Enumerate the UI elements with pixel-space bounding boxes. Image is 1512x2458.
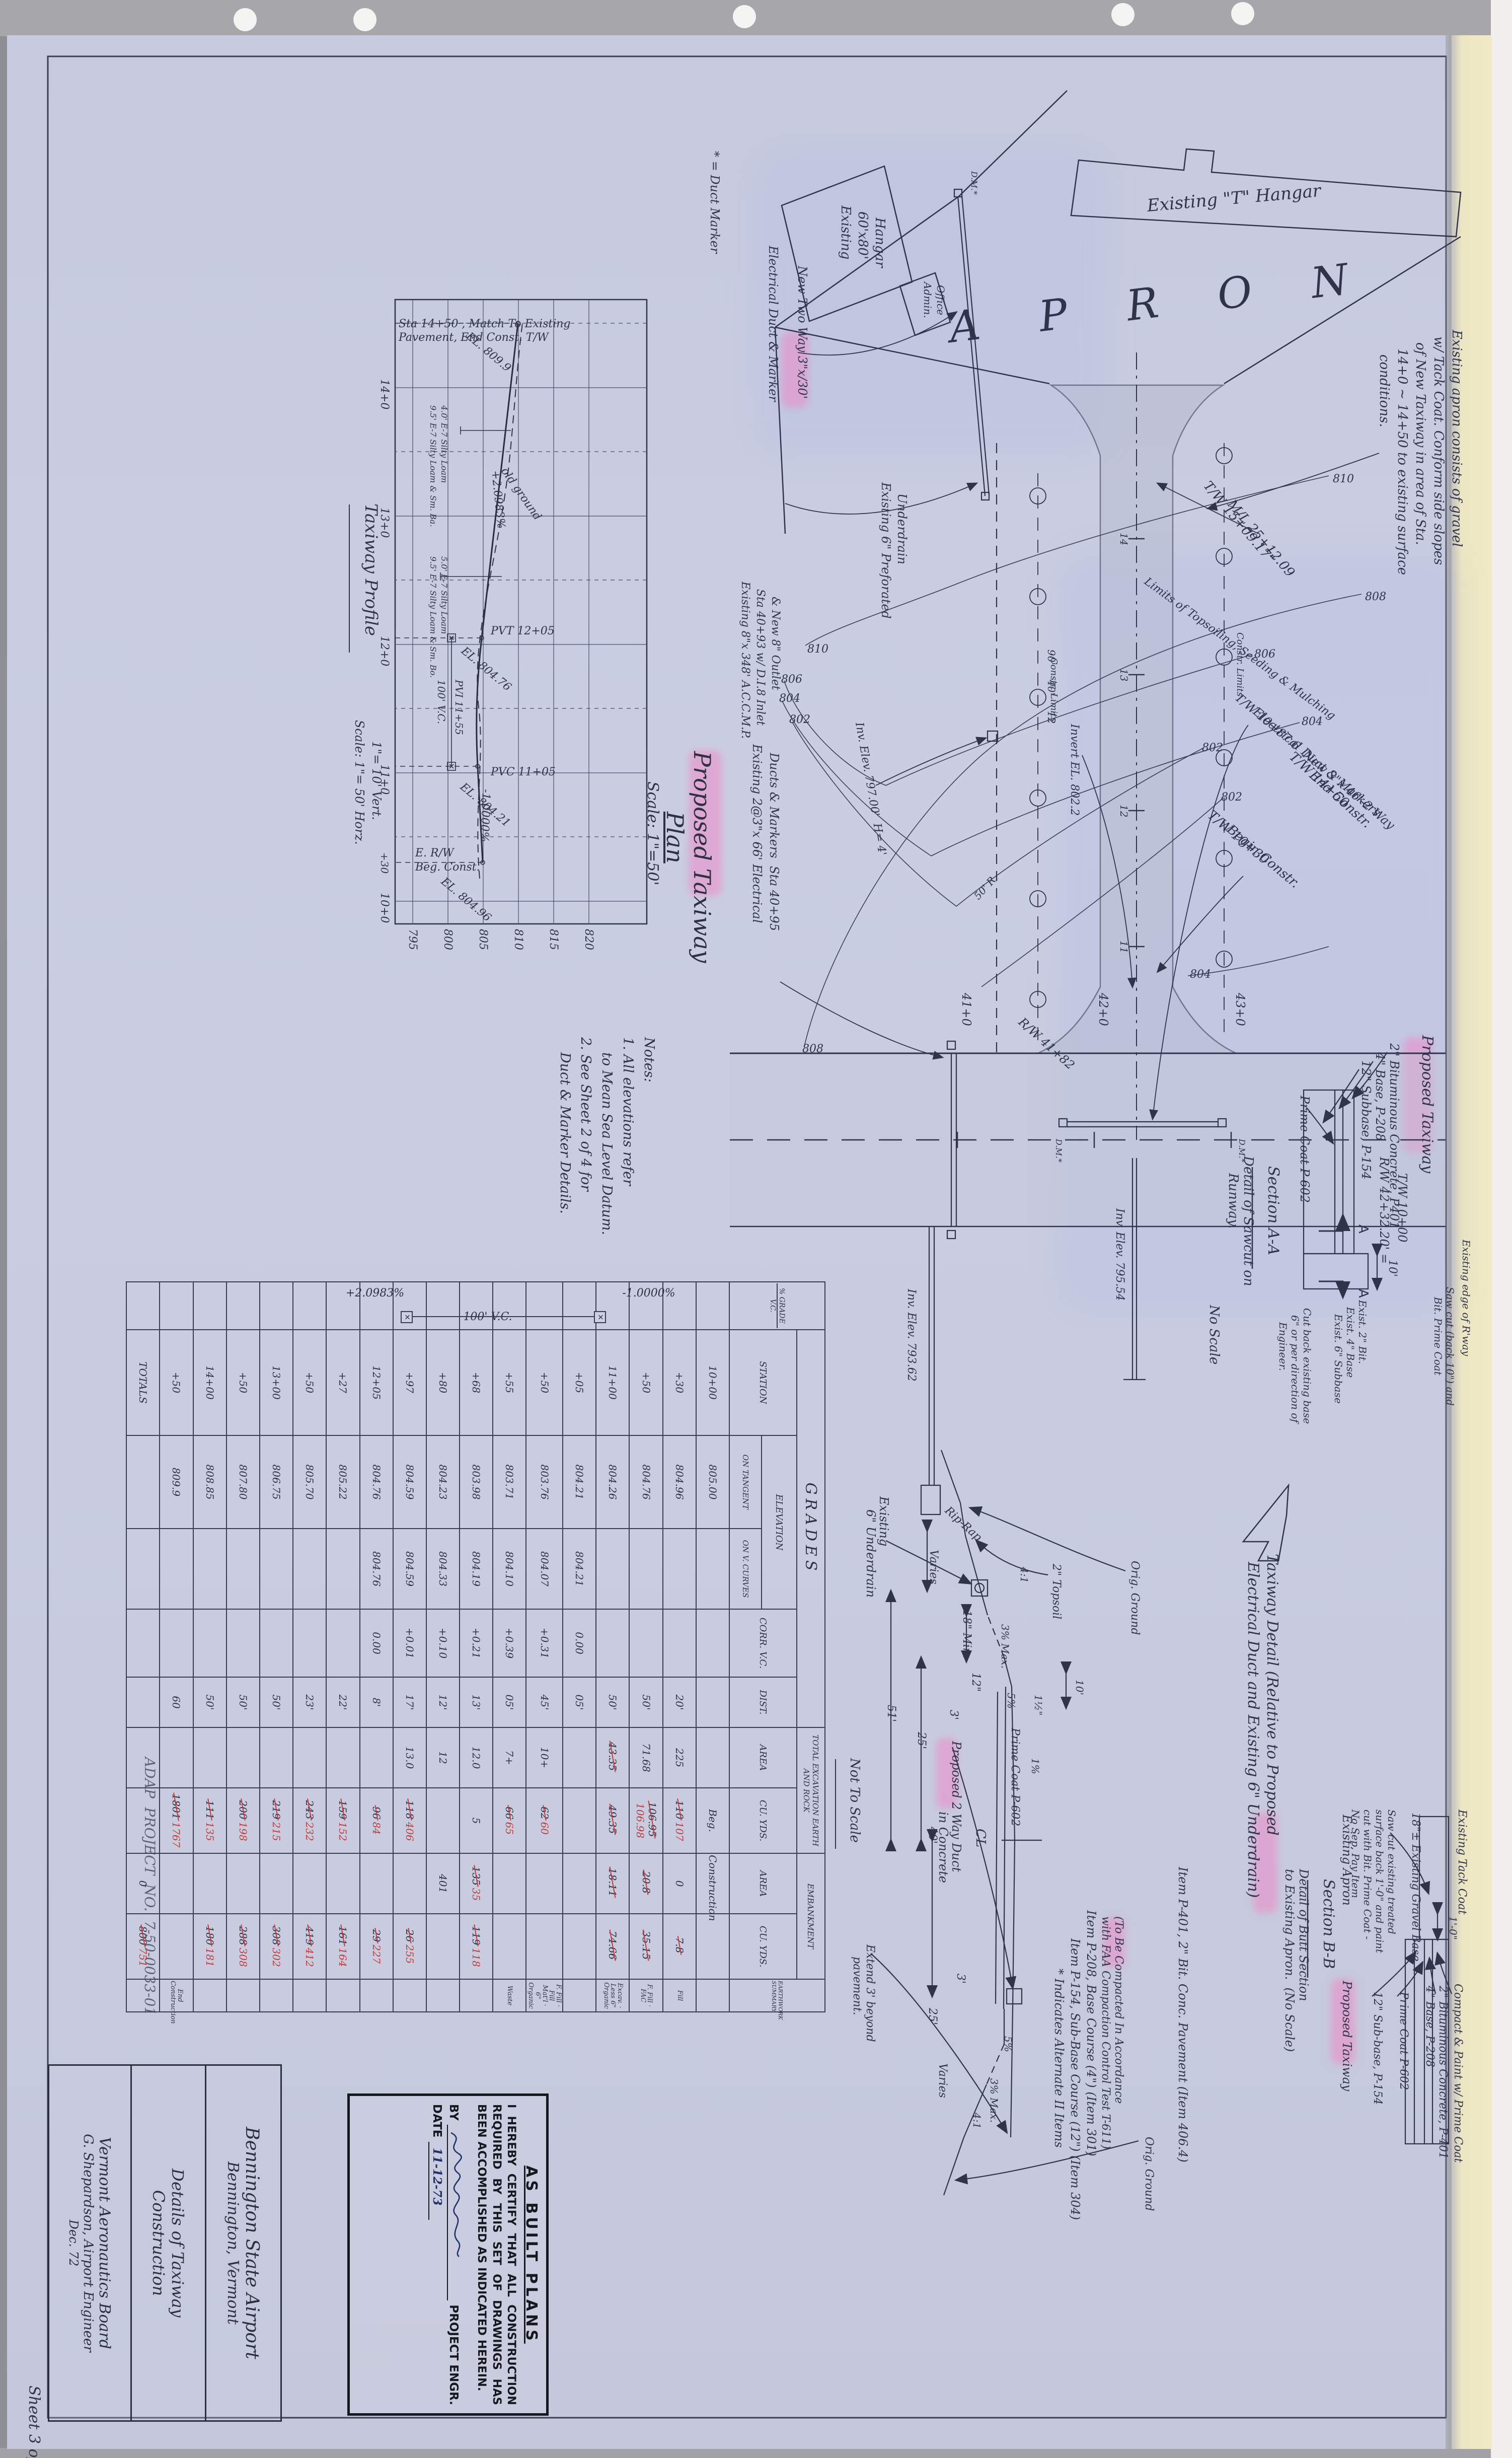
detail-orig-ground2: Orig. Ground [1143,2137,1155,2211]
grades-cell-dist: 8' [360,1677,393,1727]
detail-varies: Varies [927,1550,940,1584]
plan-dim90: 90' [1045,649,1057,665]
note-2: 2. See Sheet 2 of 4 for [575,1037,596,1299]
plan-invert8022: Invert EL. 802.2 [1068,724,1081,816]
plan-dm: D.M.* [1054,1138,1064,1163]
detail-5pct-b: 5% [1002,2036,1014,2052]
grades-cell-dist: 45' [526,1677,563,1727]
grades-cell-elev_t: 804.96 [663,1435,696,1529]
plan-underdrain6: Underdrain [895,493,909,564]
grades-row: +30804.9620'22511010707.8Fill [663,1282,696,2012]
plan-title-text: Proposed Taxiway [689,751,716,963]
grades-cell-emb_cu: 119118 [460,1914,493,1979]
grades-cell-summary [696,1979,729,2012]
grades-cell-emb_area [360,1853,393,1914]
plan-apron-note: conditions. [1377,354,1392,427]
plan-elec-duct: Electrical Duct & Marker [766,245,780,402]
sectionBB-title: Section B-B [1320,1879,1337,1969]
grades-col-cuyds2: CU. YDS. [729,1914,797,1979]
grades-cell-dist: 05' [563,1677,596,1727]
sectionBB-proposed-taxiway: Proposed Taxiway [1340,1980,1354,2091]
plan-riprap: Rip-Rap [942,1504,984,1544]
grades-cell-elev_t: 804.76 [629,1435,662,1529]
grades-cell-summary: Fill [663,1979,696,2012]
detail-underdrain: 6" Underdrain [864,1509,878,1598]
grades-cell-exc_cu: 9684 [360,1788,393,1853]
grades-cell-dist: 17' [393,1677,426,1727]
grades-row: +50809.96018011767End Construction [160,1282,193,2012]
grades-cell-exc_cu [563,1788,596,1853]
grades-cell-emb_area [493,1853,526,1914]
grades-cell-emb_cu [696,1914,729,1979]
grades-cell-dist: 50' [629,1677,662,1727]
plan-tick13: 13 [1118,669,1130,681]
plan-tick14: 14 [1118,533,1130,545]
detail-41slope: 4:1 [1018,1566,1030,1583]
contour-808: 808 [802,1043,823,1055]
airport-location: Bennington, Vermont [224,2161,242,2325]
plan-scale: Scale: 1"=50' [644,781,661,1033]
sectionBB-compact: Compact & Paint w/ Prime Coat [1452,1984,1464,2163]
stamp-signature-line [447,2125,469,2300]
sectionBB-saw: surface back 1'-0" and paint [1374,1810,1386,1954]
grades-row: 12+05804.76804.760.008'968429227 [360,1282,393,2012]
sheet-number: Sheet 3 of 4 [25,2385,43,2458]
profile-canvas: Sta 14+50 , Match To Existing Pavement, … [375,254,677,954]
grades-cell-exc_cu: Beg. [696,1788,729,1853]
grades-col-cuyds: CU. YDS. [729,1788,797,1853]
plan-hangar60: Existing [838,205,853,259]
grades-cell-emb_cu: 35.15 [629,1914,662,1979]
plan-inv797: Inv. Elev. 797.00' H= 4' [853,721,888,857]
grades-cell-elev_vc: 804.59 [393,1529,426,1609]
contour-804: 804 [1190,968,1211,981]
engineer-name: G. Shepardson, Airport Engineer [81,2134,96,2352]
sectionAA-cutback: 6" or per direction of [1289,1315,1301,1424]
grades-cell-exc_area: 12 [426,1727,460,1788]
plan-inv79362: Inv. Elev. 793.62 [905,1288,918,1382]
grades-cell-elev_t: 806.75 [260,1435,293,1529]
detail-prime: Prime Coat P-602 [1009,1727,1021,1826]
sectionAA-subtitle: Runway. [1226,1173,1241,1228]
grades-cell-emb_area [393,1853,426,1914]
profile-elev: 800 [441,929,454,950]
grades-cell-corr [629,1609,662,1677]
grades-cell-elev_vc: 804.10 [493,1529,526,1609]
detail-3: 3' [947,1710,960,1720]
grades-cell-emb_cu: 308302 [260,1914,293,1979]
grades-cell-exc_area [126,1727,160,1788]
detail-3b: 3' [954,1974,967,1984]
plan-ducts-markers: Existing 2@3"x 66' Electrical [750,744,764,923]
grades-cell-exc_cu: 18011767 [160,1788,193,1853]
grades-cell-emb_cu: 26255 [393,1914,426,1979]
grades-cell-emb_area [226,1853,260,1914]
sectionBB-existing-apron: Existing Apron [1340,1814,1354,1906]
plan-ducts-markers: Ducts & Markers Sta 40+95 [767,752,781,931]
grades-row: +50804.7650'71.68106.95106.9820.835.15F.… [629,1282,662,2012]
grade-annotation-plus: +2.0983% [320,1287,430,1300]
plan-t-hangar: Existing "T" Hangar [1146,181,1322,216]
sectionAA-cutback: Cut back existing base [1301,1308,1313,1424]
grades-row: 11+00804.2650'43.3549.3518.1174.66Excav.… [596,1282,629,2012]
profile-grade-line [477,323,518,862]
grades-cell-dist [696,1677,729,1727]
drawing-title-line2: Construction [149,2190,169,2296]
profile-pvt: PVT 12+05 [490,625,555,637]
grades-cell-exc_cu: 200198 [226,1788,260,1853]
contour-802: 802 [1221,791,1242,804]
plan-admin-office: Admin. [922,281,934,318]
grades-cell-elev_t: 805.70 [293,1435,326,1529]
note-1b: to Mean Sea Level Datum. [596,1052,617,1299]
grades-cell-elev_t: 805.00 [696,1435,729,1529]
grades-cell-emb_cu: 29227 [360,1914,393,1979]
detail-item208: Item P-208, Base Course (4") (Item 301) [1084,1910,1098,2156]
grades-cell-emb_area: 0 [663,1853,696,1914]
grades-cell-dist: 05' [493,1677,526,1727]
profile-point-leaders [395,321,520,864]
plan-title-plan: Plan [661,812,689,863]
grades-cell-gr [226,1282,260,1330]
grades-cell-dist: 50' [260,1677,293,1727]
sectionBB-sub: 12" Sub-base, P-154 [1371,1992,1384,2105]
grades-cell-summary: Waste [493,1979,526,2012]
grades-row: +27805.2222'159152161164 [326,1282,359,2012]
detail-item401: Item P-401, 2" Bit. Conc. Pavement (Item… [1176,1866,1190,2162]
grades-cell-station: 10+00 [696,1330,729,1435]
plan-underdrain6: Existing 6" Preforated [879,482,893,619]
detail-41slope-b: 4:1 [971,2112,983,2129]
plan-accmp: Existing 8"x 348' A.C.C.M.P. [739,581,751,739]
grades-cell-station: +50 [526,1330,563,1435]
grades-cell-corr [193,1609,226,1677]
detail-tobe: (To Be Compacted In Accordance [1112,1916,1125,2104]
grades-cell-station: +30 [663,1330,696,1435]
profile-boring: 9.5' E-7 Silty Loam & Sm. Ba. [428,405,438,527]
plan-admin-office: Office [935,285,947,315]
grades-cell-station: 13+00 [260,1330,293,1435]
note-1: 1. All elevations refer [617,1037,638,1299]
grades-cell-gr [160,1282,193,1330]
detail-tobe: with FAA Compaction Control Test T-611) [1099,1916,1112,2149]
grades-row: +80804.23804.33+0.1012'12401 [426,1282,460,2012]
grades-cell-emb_area [193,1853,226,1914]
profile-elev: 820 [582,929,595,950]
grades-cell-corr: +0.31 [526,1609,563,1677]
plan-sta41: 41+0 [959,992,973,1026]
grades-cell-exc_cu: 5 [460,1788,493,1853]
grades-cell-elev_vc [596,1529,629,1609]
grades-cell-exc_area [563,1727,596,1788]
grades-cell-emb_cu: 7.8 [663,1914,696,1979]
grades-cell-exc_cu: 106.95106.98 [629,1788,662,1853]
grade-annotation-minus: -1.0000% [593,1287,704,1300]
plan-tick12: 12 [1118,805,1130,817]
profile-sta: 11+0 [378,764,391,794]
grades-col-station: STATION [729,1330,797,1435]
grades-grp-embankment: EMBANKMENT [797,1853,825,1979]
sectionBB-dim: 1'-0" [1447,1916,1459,1940]
detail-underdrain: Existing [877,1496,891,1546]
detail-centerline-symbol: CL [973,1829,988,1847]
profile-match-note: Sta 14+50 , Match To Existing [399,318,571,330]
grades-cell-exc_cu [126,1788,160,1853]
contour-806: 806 [1254,648,1275,661]
sectionAA-base: 4" Base, P-208 [1373,1052,1387,1141]
grades-cell-exc_area [696,1727,729,1788]
grades-cell-emb_area: 13535 [460,1853,493,1914]
grades-cell-exc_area: 12.0 [460,1727,493,1788]
detail-3max-b: 3% Max. [988,2078,1000,2123]
sectionBB-gravel: 18"± Existing Gravel Base [1409,1813,1422,1962]
grades-cell-emb_area: 401 [426,1853,460,1914]
contour-806: 806 [781,673,802,686]
plan-r50: 50' R. [971,872,1000,902]
grades-cell-exc_cu: 243232 [293,1788,326,1853]
grades-cell-emb_area [326,1853,359,1914]
grades-cell-corr [260,1609,293,1677]
plan-hangar60: Hangar [872,217,887,268]
grades-table: % GRADE V.C. GRADES TOTAL EXCAVATION EAR… [126,1281,825,2012]
grades-title: GRADES [797,1330,825,1727]
grades-cell-corr [226,1609,260,1677]
profile-sta: 13+0 [378,508,391,538]
signature-icon [445,2129,467,2260]
grades-cell-station: 11+00 [596,1330,629,1435]
grades-cell-exc_cu: 49.35 [596,1788,629,1853]
grades-row: +50805.7023'243232419412 [293,1282,326,2012]
stamp-date-label: DATE [430,2104,443,2138]
grades-row: +05804.21804.210.0005' [563,1282,596,2012]
grades-cell-dist: 22' [326,1677,359,1727]
plan-dm: D.M.* [969,171,979,195]
grades-cell-elev_vc [160,1529,193,1609]
grades-cell-summary [260,1979,293,2012]
contour-810: 810 [807,643,828,656]
grades-cell-summary [563,1979,596,2012]
detail-item154: Item P-154, Sub-Base Course (12") (Item … [1068,1938,1082,2220]
detail-1half: 1½" [1032,1695,1044,1715]
title-block-drawing-title: Details of Taxiway Construction [130,2066,205,2420]
grades-cell-elev_t: 803.71 [493,1435,526,1529]
stamp-date-value: 11-12-73 [428,2142,444,2220]
plan-apron-note: 14+0 ~ 14+50 to existing surface [1395,348,1410,575]
grades-cell-exc_area [326,1727,359,1788]
plan-apron-note: of New Taxiway in area of Sta. [1413,342,1428,545]
grades-cell-summary [226,1979,260,2012]
profile-sta: +30 [379,852,391,874]
grades-cell-dist: 50' [596,1677,629,1727]
grades-cell-emb_cu: 180181 [193,1914,226,1979]
grades-cell-station: TOTALS [126,1330,160,1435]
grades-cell-corr [126,1609,160,1677]
detail-12: 12" [969,1673,982,1692]
detail-title: Electrical Duct and Existing 6" Underdra… [1244,1561,1262,1898]
grades-cell-exc_cu: 219215 [260,1788,293,1853]
sectionAA-heading: Proposed Taxiway [1418,1035,1436,1174]
detail-5pct: 5% [1005,1693,1017,1709]
plan-hangar60: 60'x80' [855,211,870,259]
detail-1pct: 1% [1029,1758,1041,1774]
grades-col-corr: CORR. V.C. [729,1609,797,1677]
title-block-airport: Bennington State Airport Bennington, Ver… [205,2066,280,2420]
grades-row: 14+00808.8550'111135180181 [193,1282,226,2012]
plan-new-two-way: New Two Way 3"x/30' [795,265,809,399]
sectionBB-prime: Prime Coat P-602 [1397,1991,1410,2090]
sectionAA-sawcut: Bit. Prime Coat [1432,1296,1444,1376]
grades-cell-exc_area [260,1727,293,1788]
grades-cell-emb_area [293,1853,326,1914]
grades-cell-emb_cu: 288308 [226,1914,260,1979]
section-a-letter: A [1355,1289,1371,1298]
grades-cell-elev_vc [663,1529,696,1609]
grades-cell-summary: F. Fill · Fill Mat'l · 6" Organic [526,1979,563,2012]
grades-cell-summary: F. Fill · FAC [629,1979,662,2012]
detail-40: 40' [926,1826,939,1844]
contour-808: 808 [1365,591,1386,603]
grades-cell-emb_cu: 419412 [293,1914,326,1979]
grades-cell-dist: 50' [226,1677,260,1727]
plan-tw1030: Begin Constr. [1224,822,1303,891]
grades-cell-station: +05 [563,1330,596,1435]
grades-cell-elev_t: 804.23 [426,1435,460,1529]
grades-cell-elev_vc [293,1529,326,1609]
grades-cell-elev_vc [629,1529,662,1609]
grades-cell-exc_area: 71.68 [629,1727,662,1788]
section-a-letter: A [1355,1224,1371,1234]
grades-row: 10+00805.00Beg.Construction [696,1282,729,2012]
grades-row: +55803.71804.10+0.3905'7+6665Waste [493,1282,526,2012]
grades-row: TOTALS0800751 [126,1282,160,2012]
taxiway-profile: Sta 14+50 , Match To Existing Pavement, … [375,254,677,954]
sectionAA-dim10: 10' [1386,1260,1399,1277]
grades-cell-elev_vc [126,1529,160,1609]
profile-sta: 14+0 [378,379,391,409]
plan-apron-note: Existing apron consists of gravel [1449,329,1464,547]
sectionBB-tack: Existing Tack Coat [1456,1809,1468,1915]
profile-el80496: EL. 804.96 [438,875,493,924]
grades-cell-corr: 0.00 [360,1609,393,1677]
sectionAA-subbase: 12" Subbase, P-154 [1359,1060,1373,1180]
grades-cell-elev_vc [193,1529,226,1609]
contour-804: 804 [1302,715,1323,728]
grades-cell-station: +80 [426,1330,460,1435]
detail-alt-items: * Indicates Alternate II Items [1052,1969,1066,2148]
grades-cell-elev_vc [696,1529,729,1609]
profile-boring: 5.0' E-7 Silty Loam [439,556,449,634]
grades-cell-summary [193,1979,226,2012]
grades-cell-elev_vc [260,1529,293,1609]
grades-cell-elev_t: 804.76 [360,1435,393,1529]
grades-cell-exc_area: 7+ [493,1727,526,1788]
sectionAA-exist-layers: Exist. 6" Subbase [1332,1314,1344,1404]
grades-cell-dist: 60 [160,1677,193,1727]
grades-cell-emb_area [526,1853,563,1914]
sectionBB-subtitle: to Existing Apron. (No Scale) [1282,1869,1297,2052]
grades-cell-exc_area [226,1727,260,1788]
plan-ml2512: M/L 25+12.09 [1224,496,1298,580]
contour-810: 810 [1333,473,1354,485]
grades-cell-dist: 50' [193,1677,226,1727]
grades-cell-emb_cu [160,1914,193,1979]
profile-pvi: PVI 11+55 [453,679,465,735]
grades-cell-elev_vc [226,1529,260,1609]
vc-bracket [408,1316,601,1317]
grades-cell-emb_area: 18.11 [596,1853,629,1914]
grades-cell-elev_t: 804.26 [596,1435,629,1529]
plan-const-limits: Constr. Limits [1235,632,1245,697]
plan-tick11: 11 [1118,941,1130,953]
grades-cell-emb_area: 0 [126,1853,160,1914]
detail-10: 10' [1074,1680,1086,1695]
grades-col-on-tangent: ON TANGENT [729,1435,762,1529]
contour-804: 804 [779,692,800,705]
detail-title: Taxiway Detail (Relative to Proposed [1263,1554,1281,1836]
grades-col-grade-vc: % GRADE V.C. [729,1282,825,1330]
sectionAA-subtitle: Detail of Sawcut on [1241,1155,1256,1286]
grades-cell-corr [696,1609,729,1677]
notes-heading: Notes: [638,1037,659,1299]
grades-cell-corr [326,1609,359,1677]
grades-cell-station: 14+00 [193,1330,226,1435]
profile-el80476: EL. 804.76 [458,644,513,694]
section-cut-A [1319,1216,1343,1296]
sectionAA-exist-layers: Exist. 4" Base [1344,1307,1356,1378]
detail-orig-ground: Orig. Ground [1128,1561,1141,1635]
grades-cell-exc_cu: 159152 [326,1788,359,1853]
grades-cell-summary [293,1979,326,2012]
grades-cell-exc_cu: 111135 [193,1788,226,1853]
grades-cell-corr [160,1609,193,1677]
detail-3max: 3% Max. [999,1624,1011,1669]
grades-cell-exc_cu: 110107 [663,1788,696,1853]
grades-cell-gr [193,1282,226,1330]
grades-cell-elev_t: 808.85 [193,1435,226,1529]
grades-cell-station: 12+05 [360,1330,393,1435]
grades-cell-exc_area [160,1727,193,1788]
grades-cell-station: +55 [493,1330,526,1435]
sectionBB-base: 4" Base, P-208 [1423,1985,1436,2067]
detail-18min: 18" Min. [960,1610,973,1658]
sectionAA-exist-layers: Exist. 2" Bit. [1356,1299,1369,1364]
leaders [780,312,1379,1119]
grades-cell-emb_cu [526,1914,563,1979]
detail-locator-arrow [1243,1485,1289,1561]
sectionBB-saw: Saw cut existing treated [1386,1810,1398,1934]
profile-scale: Scale: 1"= 50' Horz. [352,720,366,845]
plan-sta43: 43+0 [1233,992,1247,1026]
sectionAA-noscale: No Scale [1206,1305,1222,1364]
grades-cell-elev_t [126,1435,160,1529]
grades-cell-emb_cu: 800751 [126,1914,160,1979]
grades-cell-exc_cu: 6665 [493,1788,526,1853]
grades-cell-summary [326,1979,359,2012]
plan-title-line2: Plan [661,812,689,1033]
plan-accmp: & New 8" Outlet [769,597,782,690]
grades-cell-elev_vc [326,1529,359,1609]
drawing-border [48,56,1446,2418]
grades-row: +50803.76804.07+0.3145'10+6260F. Fill · … [526,1282,563,2012]
detail-notscale: Not To Scale [847,1758,862,1843]
grades-cell-exc_area: 10+ [526,1727,563,1788]
vc-end-symbol: ✕ [594,1311,606,1323]
profile-elev: 810 [512,929,524,950]
grades-cell-emb_cu: 161164 [326,1914,359,1979]
grades-cell-exc_area [360,1727,393,1788]
profile-boring: 9.5' E-7 Silty Loam & Sm. Bo. [428,556,438,678]
grades-cell-elev_vc: 804.76 [360,1529,393,1609]
